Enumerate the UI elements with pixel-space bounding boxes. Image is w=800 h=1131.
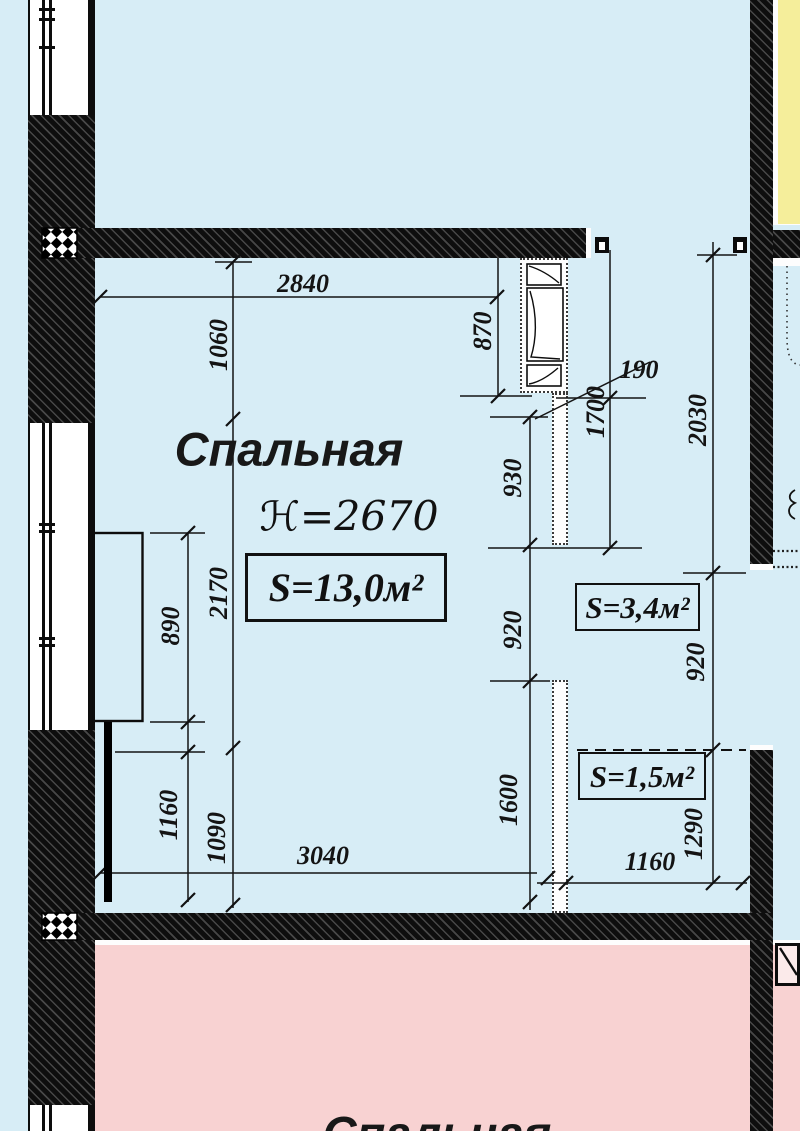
radiator-symbol [94,533,143,721]
dim-1160-left: 1160 [156,790,182,841]
wall-junction-checker-bottom [42,913,77,940]
door-leaf-bar [104,722,112,902]
floor-plan: Спальная ℋ=2670 S=13,0м² S=3,4м² S=1,5м²… [0,0,800,1131]
area-label-closet: S=3,4м² [575,583,700,631]
dim-930: 930 [500,459,526,498]
area-value-storage: S=1,5м² [590,761,694,792]
ceiling-height-label: ℋ=2670 [259,497,438,538]
area-value-bedroom: S=13,0м² [269,568,423,608]
area-label-storage: S=1,5м² [578,752,706,800]
dim-1290: 1290 [681,808,707,860]
dim-1700: 1700 [583,386,609,438]
dim-1060: 1060 [206,319,232,371]
dim-920-right: 920 [683,643,709,682]
area-label-bedroom: S=13,0м² [245,553,447,622]
dim-1090: 1090 [204,812,230,864]
dim-870: 870 [470,312,496,351]
wall-junction-checker-top [42,228,77,258]
dim-2840: 2840 [277,271,329,297]
dim-890: 890 [158,607,184,646]
dim-920-mid: 920 [500,611,526,650]
room-title-bottom-bedroom: Спальная [323,1110,552,1131]
dim-2030: 2030 [685,394,711,446]
dim-3040: 3040 [297,843,349,869]
area-value-closet: S=3,4м² [585,592,689,623]
room-title-bedroom: Спальная [175,426,404,473]
dim-1600: 1600 [496,774,522,826]
dim-1160-bottom: 1160 [625,849,676,875]
dim-190: 190 [620,357,659,383]
dim-2170: 2170 [206,567,232,619]
